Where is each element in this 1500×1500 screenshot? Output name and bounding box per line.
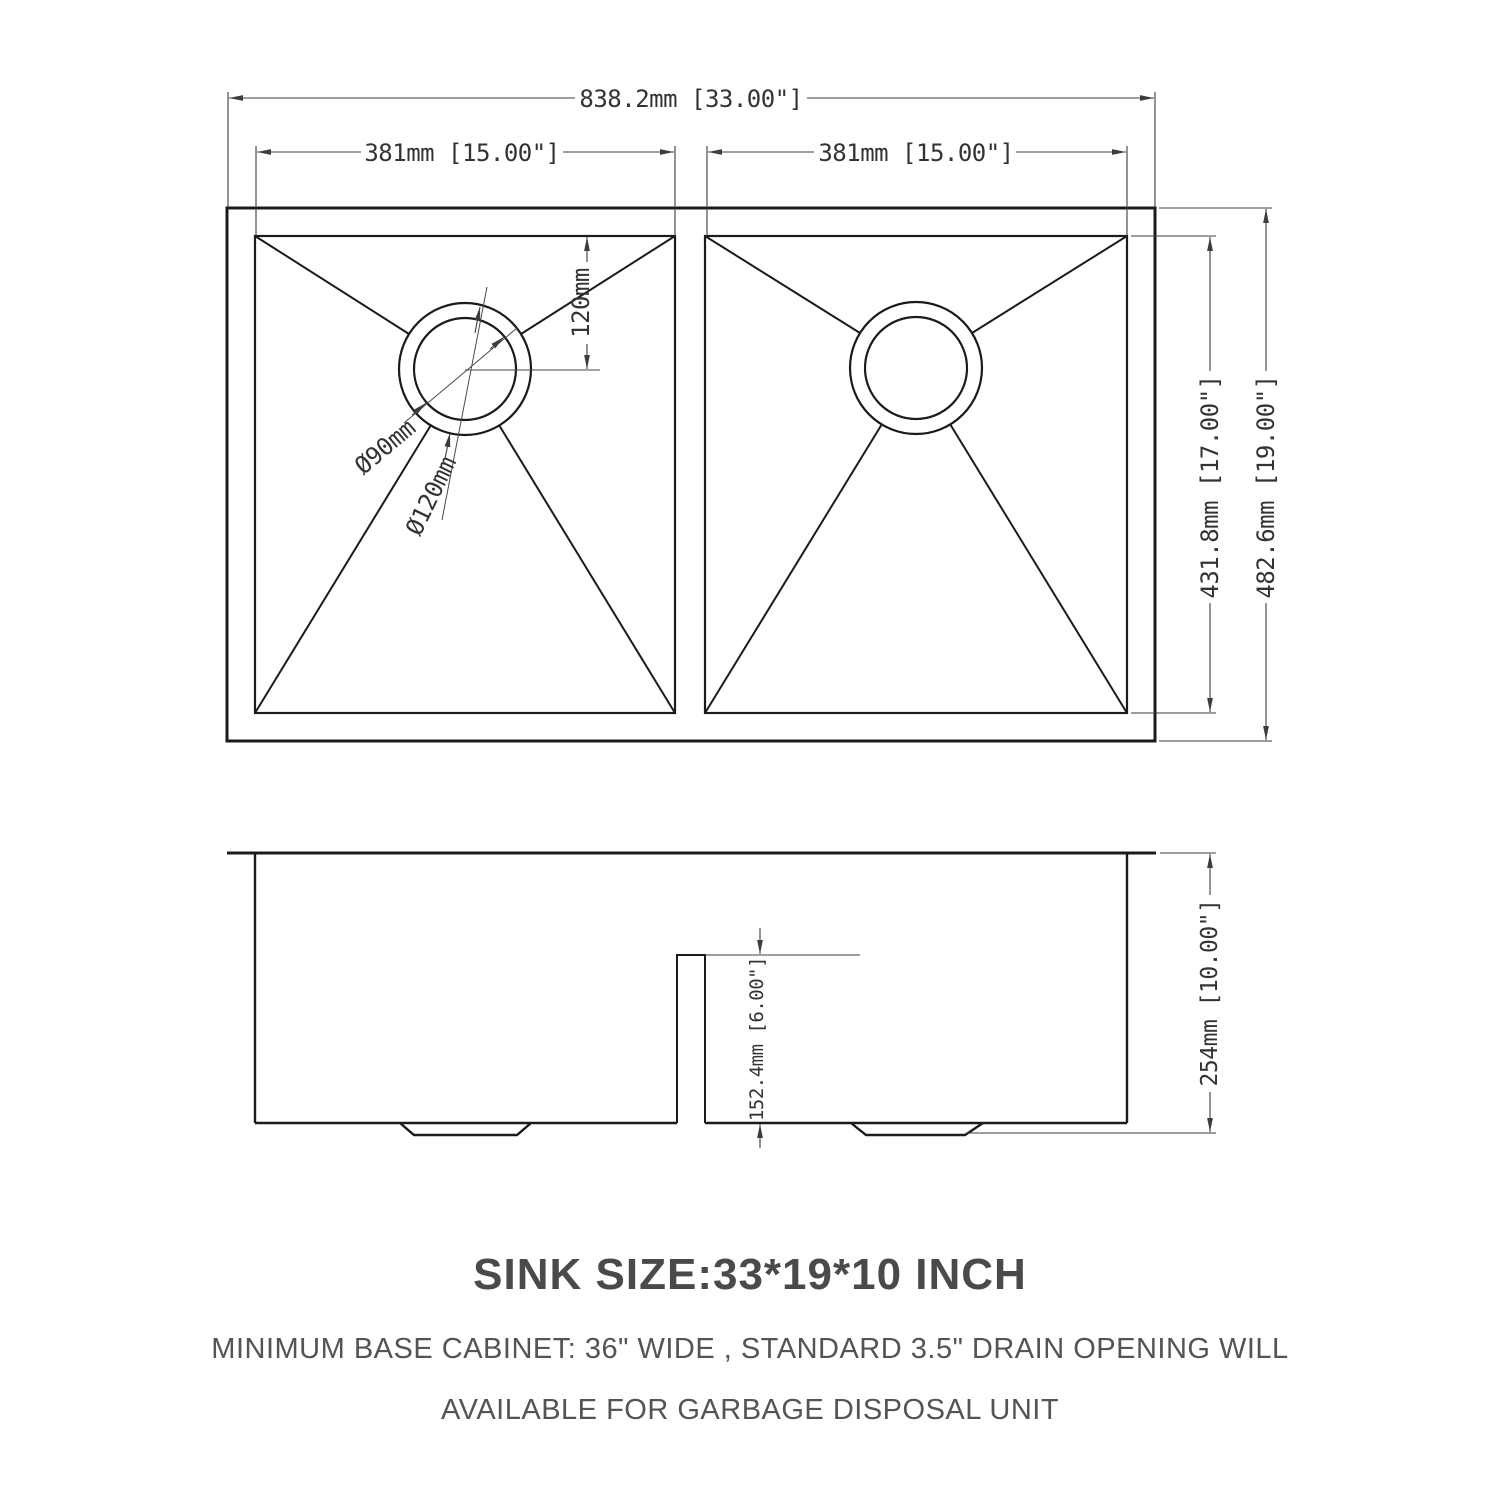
dim-drain-offset-label: 120mm xyxy=(567,268,595,338)
dim-overall-width-label: 838.2mm [33.00"] xyxy=(579,85,802,113)
side-view: 152.4mm [6.00"] 254mm [10.00"] xyxy=(227,853,1223,1148)
left-drain xyxy=(399,303,531,435)
top-view: 838.2mm [33.00"] 381mm [15.00"] 381mm [1… xyxy=(227,85,1280,741)
dim-drain-outer-diameter-label: Ø120mm xyxy=(400,452,462,540)
note-line-1: MINIMUM BASE CABINET: 36" WIDE , STANDAR… xyxy=(0,1333,1500,1366)
dim-overall-depth-label: 254mm [10.00"] xyxy=(1197,900,1223,1087)
dim-overall-length-label: 482.6mm [19.00"] xyxy=(1252,375,1280,598)
right-drain xyxy=(850,302,982,434)
dim-right-bowl-width-label: 381mm [15.00"] xyxy=(818,139,1013,167)
left-drain-boss xyxy=(400,1123,531,1135)
sink-spec-sheet: 838.2mm [33.00"] 381mm [15.00"] 381mm [1… xyxy=(0,0,1500,1500)
side-view-dimensions: 152.4mm [6.00"] 254mm [10.00"] xyxy=(705,853,1223,1148)
dim-drain-inner-diameter-label: Ø90mm xyxy=(349,414,420,480)
side-view-outline xyxy=(227,853,1156,1135)
note-line-2: AVAILABLE FOR GARBAGE DISPOSAL UNIT xyxy=(0,1394,1500,1427)
dim-bowl-length-label: 431.8mm [17.00"] xyxy=(1196,375,1224,598)
dim-divider-height-label: 152.4mm [6.00"] xyxy=(746,957,768,1121)
top-view-dimensions: 838.2mm [33.00"] 381mm [15.00"] 381mm [1… xyxy=(228,85,1280,741)
right-drain-boss xyxy=(851,1123,983,1135)
right-bowl-diagonals xyxy=(705,236,1127,713)
left-bowl-diagonals xyxy=(255,236,675,713)
dim-left-bowl-width-label: 381mm [15.00"] xyxy=(364,139,559,167)
right-bowl xyxy=(705,236,1127,713)
sink-size-title: SINK SIZE:33*19*10 INCH xyxy=(0,1250,1500,1300)
left-bowl xyxy=(255,236,675,713)
divider-slot xyxy=(677,955,705,1123)
